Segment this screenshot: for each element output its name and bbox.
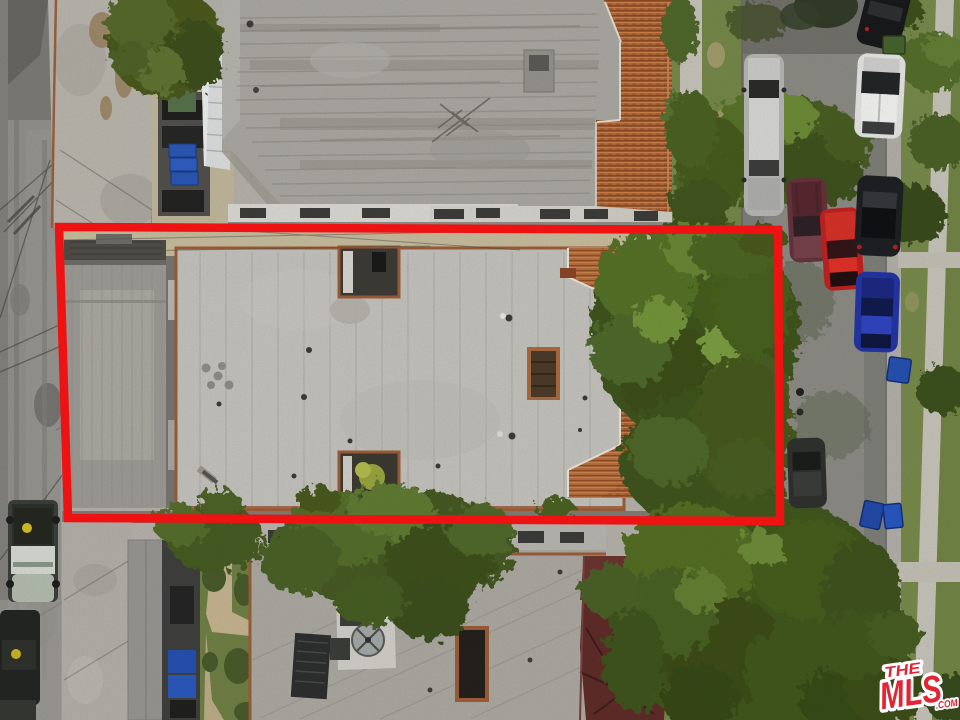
svg-text:MLS: MLS: [877, 668, 944, 718]
